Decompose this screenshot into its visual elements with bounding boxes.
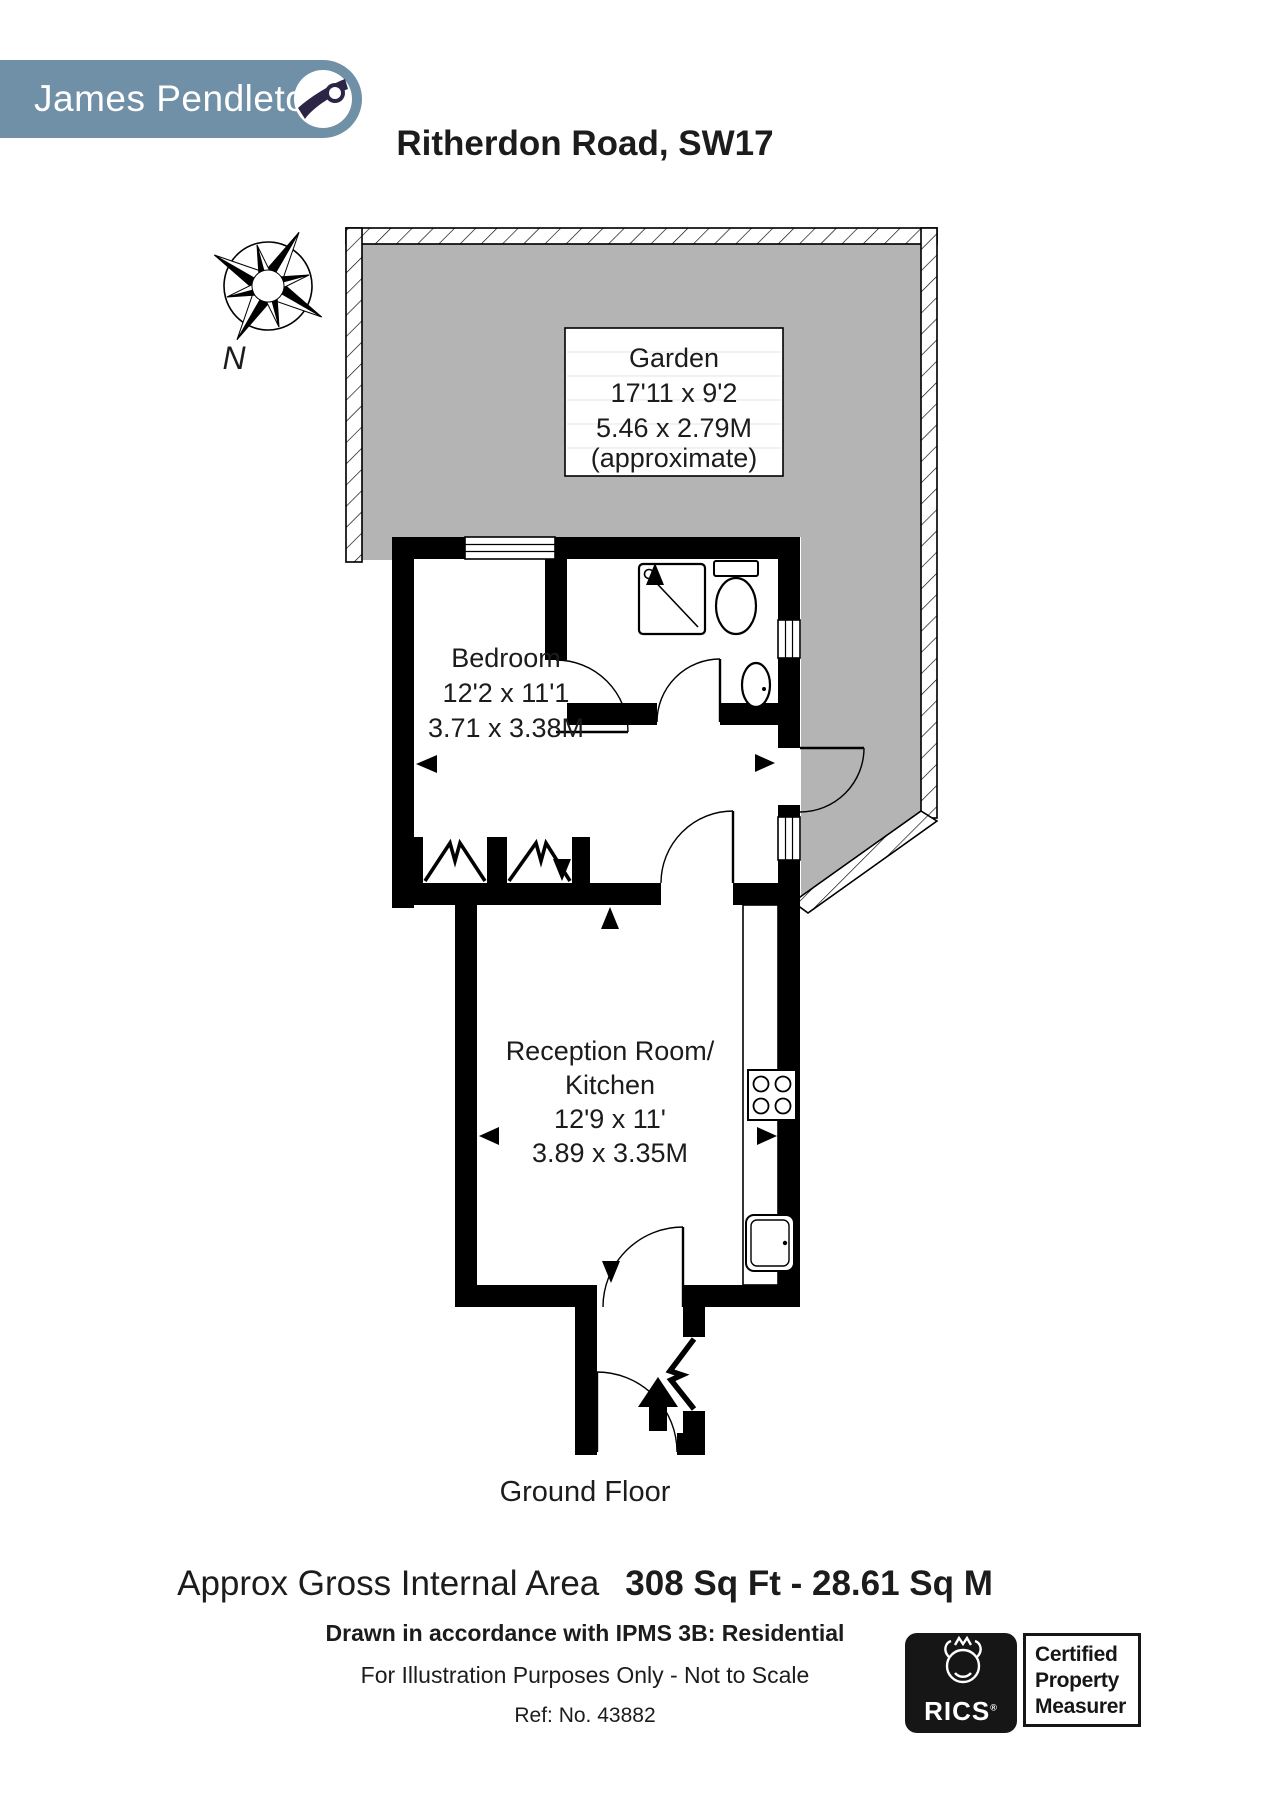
page-title: Ritherdon Road, SW17 [0,124,1170,164]
north-label: N [204,340,264,377]
bedroom-name: Bedroom [451,643,561,673]
agency-logo-text: James Pendleton [0,78,327,120]
garden-note: (approximate) [591,443,758,473]
bedroom-label: Bedroom 12'2 x 11'1 3.71 x 3.38M [428,643,584,743]
registered-mark: ® [990,1702,998,1712]
gross-area-label: Approx Gross Internal Area [177,1564,599,1603]
garden-name: Garden [629,343,719,373]
reception-label: Reception Room/ Kitchen 12'9 x 11' 3.89 … [506,1036,715,1168]
garden-size-imperial: 17'11 x 9'2 [611,378,738,408]
cert-line1: Certified [1035,1642,1138,1668]
certified-measurer-badge: Certified Property Measurer [1023,1633,1141,1727]
bedroom-size-metric: 3.71 x 3.38M [428,713,584,743]
gross-area-value: 308 Sq Ft - 28.61 Sq M [625,1564,993,1603]
floorplan-drawing: Garden 17'11 x 9'2 5.46 x 2.79M (approxi… [340,215,980,1475]
kitchen-sink-icon [746,1215,794,1271]
reception-name-line1: Reception Room/ [506,1036,715,1066]
shower-icon [639,564,705,634]
toilet-icon [714,561,758,634]
cert-line2: Property [1035,1668,1138,1694]
rics-badge: RICS® [905,1633,1017,1733]
bathroom-sink-icon [742,663,770,707]
gross-area-line: Approx Gross Internal Area308 Sq Ft - 28… [0,1564,1170,1604]
garden-label-box: Garden 17'11 x 9'2 5.46 x 2.79M (approxi… [565,328,783,476]
rics-lion-icon [905,1633,1017,1697]
cert-line3: Measurer [1035,1694,1138,1720]
reception-size-metric: 3.89 x 3.35M [532,1138,688,1168]
bedroom-size-imperial: 12'2 x 11'1 [443,678,570,708]
opening-zigzag-icon [670,1339,694,1409]
walls [392,537,800,1455]
rics-brand: RICS® [905,1696,1017,1727]
hob-icon [748,1070,796,1120]
floor-label: Ground Floor [0,1476,1170,1509]
garden-size-metric: 5.46 x 2.79M [596,413,752,443]
agency-logo-emblem-icon [293,69,353,129]
floorplan-page: James Pendleton Ritherdon Road, SW17 [0,0,1273,1800]
reception-name-line2: Kitchen [565,1070,655,1100]
reception-size-imperial: 12'9 x 11' [554,1104,666,1134]
